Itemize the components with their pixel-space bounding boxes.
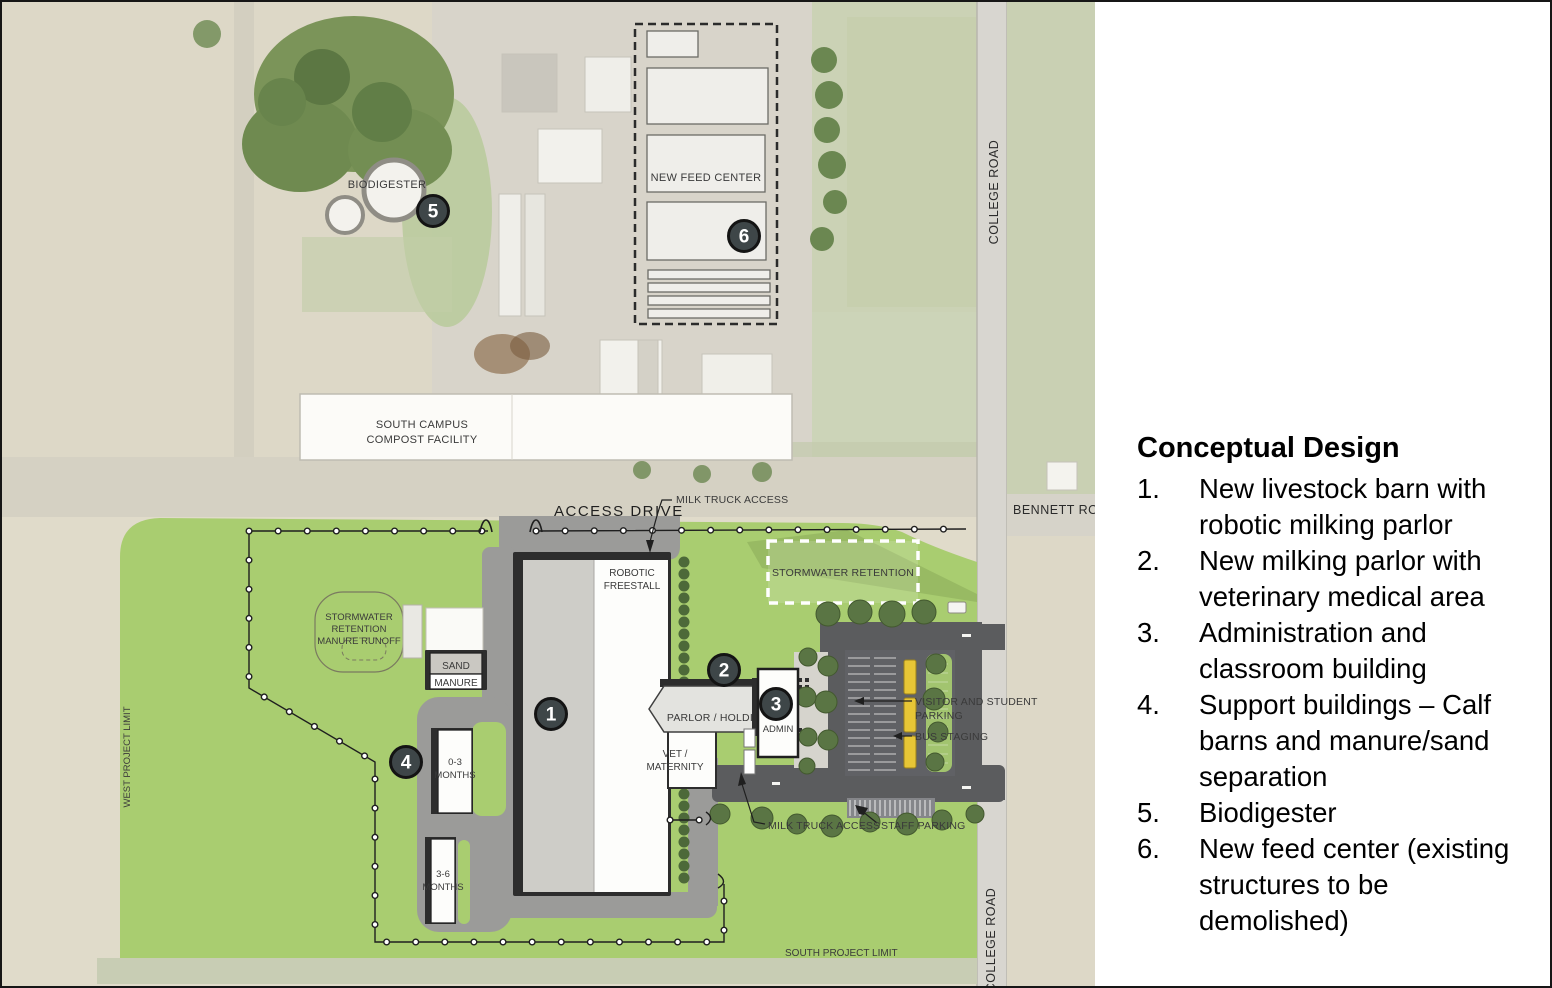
legend-item-text: Biodigester <box>1199 795 1534 831</box>
legend-title: Conceptual Design <box>1137 432 1540 465</box>
legend-item-2: 2. New milking parlor with veterinary me… <box>1137 543 1540 615</box>
compost-facility-label: SOUTH CAMPUS <box>376 419 468 431</box>
vet-maternity-label: VET / <box>663 749 688 760</box>
marker-6: 6 <box>729 221 760 252</box>
calf-0-3-label: MONTHS <box>434 770 475 781</box>
west-project-limit-label: WEST PROJECT LIMIT <box>122 706 133 807</box>
calf-0-3-label: 0-3 <box>448 757 462 768</box>
staff-parking-label: STAFF PARKING <box>881 820 965 832</box>
marker-5: 5 <box>418 196 449 227</box>
site-plan-screenshot: BIODIGESTER SOUTH CAMPUS COMPOST FACILIT… <box>0 0 1552 988</box>
legend-item-text: New feed center (existing structures to … <box>1199 831 1534 939</box>
admin-label: ADMIN <box>763 724 794 735</box>
legend-item-4: 4. Support buildings – Calf barns and ma… <box>1137 687 1540 795</box>
manure-runoff-label: STORMWATER <box>325 612 393 623</box>
manure-runoff-label: MANURE RUNOFF <box>317 636 401 647</box>
svg-text:3: 3 <box>771 695 782 716</box>
legend-item-text: Administration and classroom building <box>1199 615 1534 687</box>
site-plan-map: BIODIGESTER SOUTH CAMPUS COMPOST FACILIT… <box>2 2 1095 986</box>
svg-text:6: 6 <box>739 227 750 248</box>
college-road-label-bottom: COLLEGE ROAD <box>984 888 998 986</box>
robotic-freestall-label: ROBOTIC <box>609 568 655 579</box>
legend-item-number: 2. <box>1137 543 1199 615</box>
south-project-limit-label: SOUTH PROJECT LIMIT <box>785 948 898 959</box>
milk-truck-access-bottom-label: MILK TRUCK ACCESS <box>768 820 880 832</box>
new-feed-center-label: NEW FEED CENTER <box>651 172 762 184</box>
legend-item-number: 5. <box>1137 795 1199 831</box>
livestock-barn <box>513 552 671 896</box>
legend-item-6: 6. New feed center (existing structures … <box>1137 831 1540 939</box>
stormwater-retention-label: STORMWATER RETENTION <box>772 567 914 579</box>
svg-text:2: 2 <box>719 661 730 682</box>
legend-panel: Conceptual Design 1. New livestock barn … <box>1095 2 1550 986</box>
legend-item-text: Support buildings – Calf barns and manur… <box>1199 687 1534 795</box>
marker-2: 2 <box>709 655 740 686</box>
calf-3-6-label: MONTHS <box>422 882 463 893</box>
svg-text:1: 1 <box>546 705 557 726</box>
marker-4: 4 <box>391 747 422 778</box>
robotic-freestall-label: FREESTALL <box>604 581 661 592</box>
marker-3: 3 <box>761 689 792 720</box>
calf-3-6-label: 3-6 <box>436 869 450 880</box>
legend-item-text: New livestock barn with robotic milking … <box>1199 471 1534 543</box>
legend-item-number: 3. <box>1137 615 1199 687</box>
legend-item-1: 1. New livestock barn with robotic milki… <box>1137 471 1540 543</box>
compost-facility-building <box>300 394 792 460</box>
bennett-road-label: BENNETT ROAD <box>1013 503 1095 517</box>
svg-text:4: 4 <box>401 753 412 774</box>
marker-1: 1 <box>536 699 567 730</box>
legend-item-number: 1. <box>1137 471 1199 543</box>
svg-text:5: 5 <box>428 202 439 223</box>
legend-item-text: New milking parlor with veterinary medic… <box>1199 543 1534 615</box>
manure-label: MANURE <box>434 678 478 689</box>
visitor-parking-label: PARKING <box>915 710 963 722</box>
calf-barn-3-6 <box>425 837 456 924</box>
legend-item-number: 4. <box>1137 687 1199 795</box>
manure-runoff-label: RETENTION <box>332 624 387 635</box>
legend-item-5: 5. Biodigester <box>1137 795 1540 831</box>
access-drive-label: ACCESS DRIVE <box>554 503 684 520</box>
compost-facility-label: COMPOST FACILITY <box>367 434 478 446</box>
green-island <box>472 722 506 816</box>
vet-maternity-label: MATERNITY <box>646 762 703 773</box>
college-road-label-top: COLLEGE ROAD <box>987 140 1001 245</box>
sand-label: SAND <box>442 661 470 672</box>
bus-staging-label: BUS STAGING <box>915 731 988 743</box>
milk-truck <box>744 729 755 774</box>
visitor-parking-label: VISITOR AND STUDENT <box>915 696 1038 708</box>
legend-item-3: 3. Administration and classroom building <box>1137 615 1540 687</box>
legend-item-number: 6. <box>1137 831 1199 939</box>
milk-truck-access-top-label: MILK TRUCK ACCESS <box>676 494 788 506</box>
biodigester-label: BIODIGESTER <box>348 179 426 191</box>
